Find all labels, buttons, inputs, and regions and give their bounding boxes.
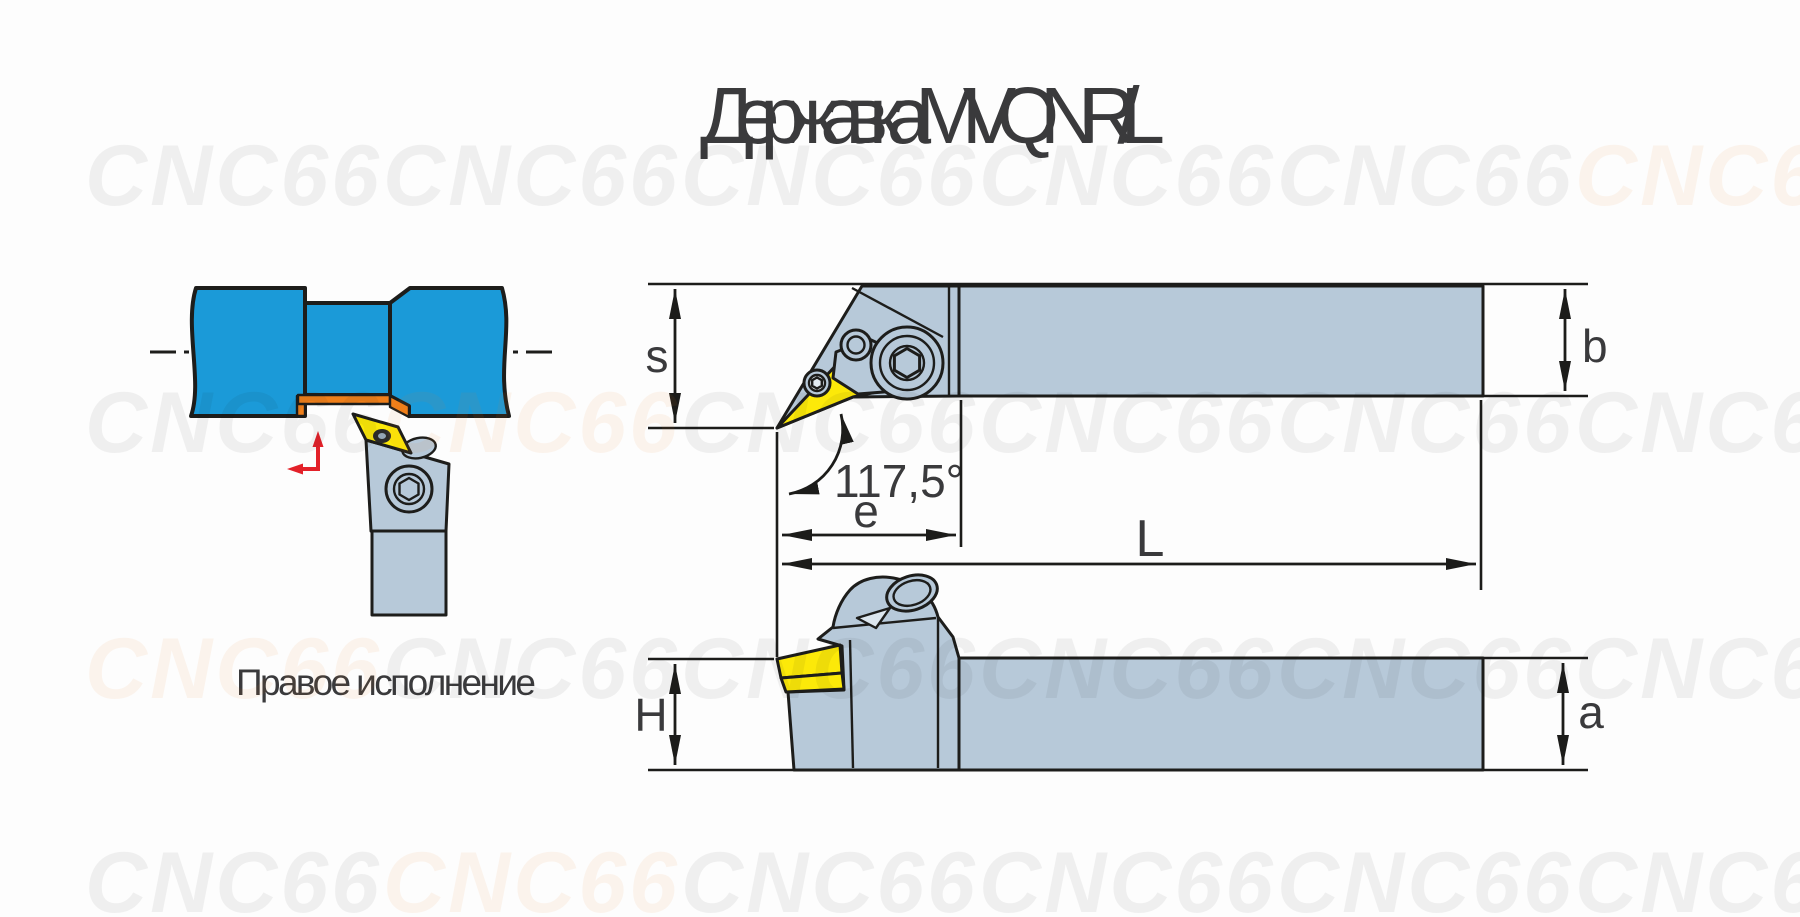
watermark: CNC66	[85, 835, 382, 917]
toolholder-shank-3d	[372, 531, 446, 615]
watermark: CNC66	[1575, 128, 1800, 224]
watermark: CNC66	[1277, 375, 1574, 471]
watermark: CNC66	[1277, 835, 1574, 917]
watermark: CNC66	[1277, 128, 1574, 224]
watermark-layer: CNC66 CNC66 CNC66 CNC66 CNC66 CNC66 CNC6…	[85, 128, 1800, 917]
watermark: CNC66	[1575, 375, 1800, 471]
watermark: CNC66	[85, 128, 382, 224]
dim-label-b: b	[1582, 320, 1608, 372]
watermark: CNC66	[383, 375, 680, 471]
watermark: CNC66	[85, 621, 382, 717]
watermark: CNC66	[383, 128, 680, 224]
watermark: CNC66	[1277, 621, 1574, 717]
watermark: CNC66	[979, 621, 1276, 717]
watermark: CNC66	[1575, 835, 1800, 917]
watermark: CNC66	[383, 621, 680, 717]
watermark: CNC66	[681, 621, 978, 717]
watermark: CNC66	[681, 375, 978, 471]
watermark: CNC66	[85, 375, 382, 471]
watermark: CNC66	[383, 835, 680, 917]
watermark: CNC66	[1575, 621, 1800, 717]
technical-drawing: Державка MVQNR/L Правое исполнение	[0, 0, 1800, 917]
watermark: CNC66	[979, 375, 1276, 471]
watermark: CNC66	[979, 128, 1276, 224]
watermark: CNC66	[681, 835, 978, 917]
clamp-nose	[841, 330, 871, 360]
dim-label-L: L	[1136, 510, 1165, 568]
watermark: CNC66	[979, 835, 1276, 917]
catalog-figure: Державка MVQNR/L Правое исполнение	[0, 0, 1800, 917]
dim-label-e: e	[853, 485, 879, 537]
watermark: CNC66	[681, 128, 978, 224]
